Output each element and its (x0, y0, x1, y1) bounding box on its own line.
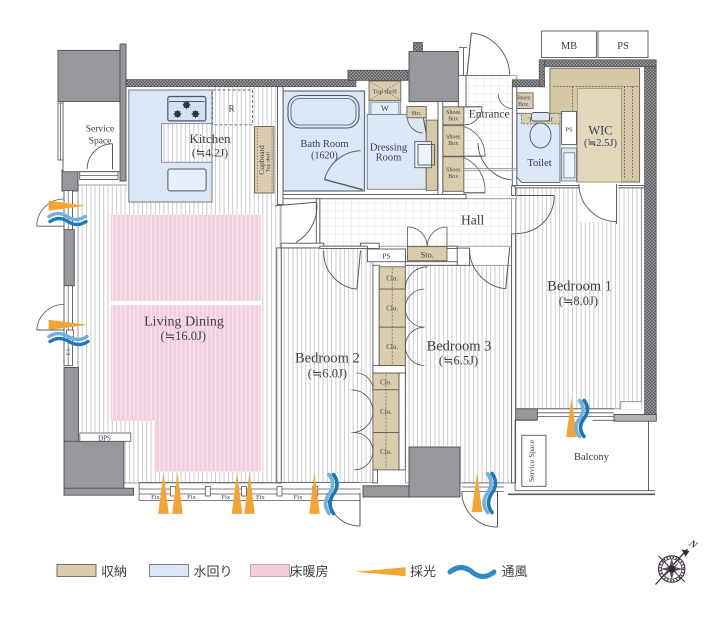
svg-text:採光: 採光 (410, 564, 436, 579)
svg-text:Balcony: Balcony (574, 452, 610, 463)
svg-text:Living Dining: Living Dining (144, 315, 224, 330)
svg-text:Bedroom 1: Bedroom 1 (547, 279, 612, 295)
svg-text:MB: MB (561, 41, 577, 52)
svg-text:Box: Box (448, 174, 458, 180)
svg-text:R: R (228, 104, 234, 114)
svg-text:Box: Box (518, 102, 528, 108)
svg-text:Fix: Fix (151, 494, 160, 501)
svg-text:通風: 通風 (502, 564, 528, 579)
svg-text:Toilet: Toilet (527, 158, 551, 169)
svg-text:W: W (381, 103, 389, 113)
svg-text:Clo.: Clo. (380, 408, 392, 416)
svg-text:水回り: 水回り (194, 564, 233, 579)
svg-text:DPS: DPS (98, 434, 111, 442)
svg-text:Clo.: Clo. (380, 448, 392, 456)
svg-text:PS: PS (617, 41, 629, 52)
svg-text:Clo.: Clo. (386, 305, 398, 313)
svg-text:Sto.: Sto. (420, 250, 433, 260)
svg-text:E S: E S (67, 348, 72, 355)
svg-text:Room: Room (376, 153, 402, 164)
svg-text:PS: PS (565, 127, 573, 134)
svg-text:Fix: Fix (294, 494, 303, 501)
svg-text:Kitchen: Kitchen (189, 131, 231, 146)
svg-text:(≒16.0J): (≒16.0J) (161, 329, 207, 343)
svg-text:Shoes: Shoes (516, 96, 531, 102)
svg-text:Box: Box (448, 116, 458, 122)
svg-text:床暖房: 床暖房 (290, 564, 329, 579)
svg-text:Fix: Fix (187, 494, 196, 501)
svg-text:Clo.: Clo. (386, 275, 398, 283)
svg-text:(≒8.0J): (≒8.0J) (559, 294, 598, 308)
svg-text:PS: PS (382, 252, 390, 261)
svg-text:Top shelf: Top shelf (265, 152, 272, 173)
svg-text:Clo.: Clo. (386, 343, 398, 351)
svg-text:Sto.: Sto. (411, 110, 422, 117)
svg-text:Box: Box (448, 141, 458, 147)
svg-text:Fix: Fix (256, 494, 265, 501)
svg-text:Shoes: Shoes (446, 110, 461, 116)
svg-text:WIC: WIC (588, 124, 612, 138)
svg-text:(≒6.0J): (≒6.0J) (308, 367, 347, 381)
svg-text:Shoes: Shoes (446, 135, 461, 141)
svg-text:(≒6.5J): (≒6.5J) (439, 354, 478, 368)
svg-text:Clo.: Clo. (380, 378, 392, 386)
svg-text:Bedroom 3: Bedroom 3 (427, 339, 492, 355)
svg-text:(≒2.5J): (≒2.5J) (584, 138, 618, 149)
svg-text:Entrance: Entrance (469, 109, 510, 121)
svg-text:Bath Room: Bath Room (300, 139, 348, 150)
svg-text:収納: 収納 (101, 564, 127, 579)
svg-text:Bedroom 2: Bedroom 2 (295, 351, 360, 367)
svg-text:Shoes: Shoes (446, 168, 461, 174)
svg-text:Fix: Fix (222, 494, 231, 501)
svg-text:Service Space: Service Space (527, 439, 536, 482)
svg-text:Space: Space (89, 137, 112, 147)
svg-text:(1620): (1620) (311, 151, 338, 162)
svg-text:Top shelf: Top shelf (373, 89, 398, 96)
svg-text:Hall: Hall (461, 213, 484, 228)
svg-text:Service: Service (86, 125, 115, 135)
svg-text:(≒4.2J): (≒4.2J) (192, 148, 228, 160)
